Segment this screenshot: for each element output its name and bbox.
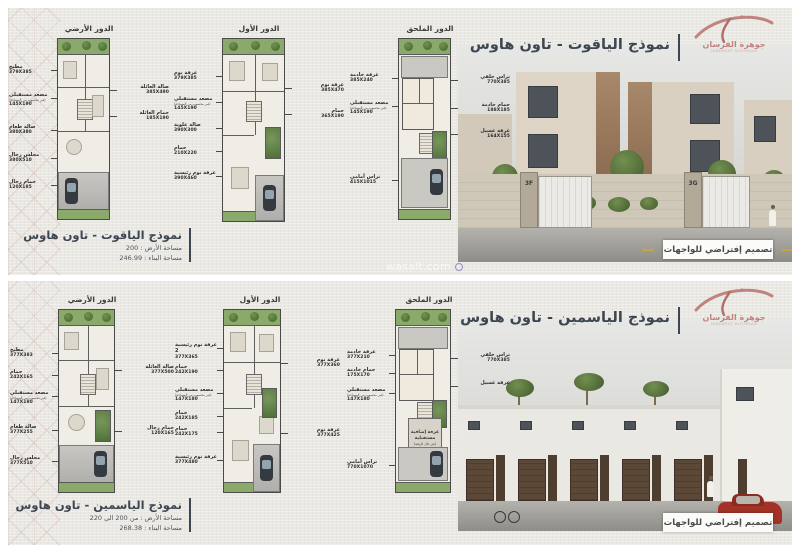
room-label: مصعد مستقبلي (غير محسوب من المساحة) 147X… <box>175 387 217 403</box>
garden-strip <box>58 39 109 55</box>
model-name: نموذج الياسمين - تاون هاوس <box>22 498 182 512</box>
dining-table <box>68 414 85 431</box>
palm-tree <box>643 381 669 397</box>
model-info: نموذج الياقوت - تاون هاوس مساحة الأرض : … <box>22 228 191 262</box>
right-label-column: غرفة نوم 377X360 غرفة نوم 377X425 <box>288 295 340 509</box>
tree <box>64 313 73 322</box>
garden-strip <box>396 482 450 492</box>
model-info: نموذج الياسمين - تاون هاوس مساحة الأرض :… <box>22 498 191 532</box>
person <box>707 481 714 497</box>
room-label: غرفة نوم 377X425 <box>288 427 340 439</box>
unit-sign-3g: 3G <box>685 180 701 187</box>
room-label: مطبخ 379X385 <box>9 64 51 76</box>
entry-door <box>652 455 661 501</box>
bed <box>259 416 274 434</box>
window <box>676 421 688 430</box>
room-label: حمام خادمة 175X170 <box>347 367 389 379</box>
room-label: مجلس رجال 380X510 <box>9 152 51 164</box>
wall <box>224 408 252 409</box>
driveway <box>253 444 280 492</box>
wall <box>419 79 420 103</box>
right-label-column: غرفة نوم 385X470 حمام 365X190 <box>292 24 344 236</box>
wall <box>58 87 109 88</box>
tree <box>250 312 259 321</box>
floor-plan-first: الدور الأول <box>174 24 344 236</box>
driveway <box>255 175 284 221</box>
end-unit <box>720 369 792 501</box>
hedge <box>608 197 630 212</box>
room-label: مصعد مستقبلي (غير محسوب من المساحة) 145X… <box>9 92 51 108</box>
tree <box>438 313 447 322</box>
logo-subtitle: JAWHARAT ALFURSAN <box>684 323 784 327</box>
tree <box>423 41 432 50</box>
bed <box>229 61 245 81</box>
room-label: صالة علوية 390X300 <box>174 122 216 134</box>
gate-post: 3G <box>684 172 702 228</box>
tree <box>251 41 260 50</box>
room-label: حمام 242X165 <box>10 369 52 381</box>
garden-strip <box>223 39 284 55</box>
watermark: wasalt.com <box>386 260 463 273</box>
room-label: مصعد مستقبلي (غير محسوب من المساحة) 145X… <box>174 96 216 112</box>
facade-disclaimer-badge: تصميم إفتراضي للواجهات <box>663 513 773 532</box>
stairs <box>80 374 96 395</box>
wall <box>58 131 109 132</box>
garden-patch <box>262 388 277 418</box>
garage-door <box>570 459 598 501</box>
tree <box>401 313 410 322</box>
window <box>572 421 584 430</box>
palm-tree <box>574 373 604 391</box>
room-label: غرفة غسيل 164X155 <box>458 128 510 140</box>
room-label: مصعد مستقبلي (غير محسوب من المساحة) 145X… <box>350 100 392 116</box>
garden-strip <box>399 39 450 55</box>
floor-plan-first: الدور الأول <box>175 295 345 509</box>
wall <box>223 91 284 92</box>
built-area: مساحة البناء : 246.99 <box>22 254 182 262</box>
bed <box>232 440 249 461</box>
dining-table <box>66 139 82 155</box>
person <box>769 210 776 226</box>
logo-subtitle: JAWHARAT ALFURSAN <box>684 50 784 54</box>
floor-plan-ground: الدور الأرضي مطبخ <box>9 24 169 236</box>
tree <box>102 313 111 322</box>
bed <box>259 334 274 352</box>
tree <box>229 42 238 51</box>
room-label: صالة طعام 377X255 <box>10 424 52 436</box>
tree <box>439 42 448 51</box>
car-top-view <box>263 185 276 211</box>
wall <box>59 360 114 361</box>
room-label: غرفة نوم 385X470 <box>292 82 344 94</box>
room-label: صالة طعام 380X380 <box>9 124 51 136</box>
room-label: حمام خادمة 188X185 <box>458 102 510 114</box>
window <box>754 116 776 142</box>
furniture <box>92 95 104 117</box>
room-label: غرفة نوم 377X360 <box>288 357 340 369</box>
stairs <box>246 101 262 122</box>
car-top-view <box>430 451 443 477</box>
land-area: مساحة الأرض : من 200 الى 220 <box>22 514 182 522</box>
room-label: غرفة غسيل <box>458 380 510 386</box>
room-label: حمام 365X190 <box>292 108 344 120</box>
room-label: مطبخ 377X383 <box>10 347 52 359</box>
room-label: حمام رجال 120X165 <box>122 425 174 437</box>
window <box>528 134 558 168</box>
room-label: حمام 242X175 <box>175 426 217 438</box>
back-terrace <box>401 56 448 78</box>
room-label: غرفة نوم 379X385 <box>174 70 216 82</box>
floor-plan-annex: الدور الملحق غر <box>350 24 510 236</box>
brand-logo: جوهرة الفرسان JAWHARAT ALFURSAN <box>684 11 784 54</box>
room-label: صالة العائلة 385X490 <box>117 84 169 96</box>
plan-drawing <box>222 38 285 222</box>
car-top-view <box>65 178 78 204</box>
car-top-view <box>94 451 107 477</box>
gate-post: 3F <box>520 172 538 228</box>
room-label: غرفة خادمة 385X240 <box>350 72 392 84</box>
bed <box>230 332 246 352</box>
wall <box>255 54 256 135</box>
garden-strip <box>399 209 450 219</box>
model-name: نموذج الياقوت - تاون هاوس <box>22 228 182 242</box>
room-label: غرفة خادمة 377X210 <box>347 349 389 361</box>
white-gate <box>702 176 750 228</box>
garden-strip <box>59 310 114 326</box>
panel-yasmin: جوهرة الفرسان JAWHARAT ALFURSAN نموذج ال… <box>8 281 792 545</box>
tree <box>84 312 93 321</box>
car-top-view <box>260 455 273 481</box>
floor-plan-ground: الدور الأرضي <box>10 295 174 509</box>
plan-drawing <box>223 309 281 493</box>
front-terrace <box>401 158 448 208</box>
land-area: مساحة الأرض : 200 <box>22 244 182 252</box>
room-label: تراس خلفي 770X385 <box>458 74 510 86</box>
tree <box>421 312 430 321</box>
room-label: مصعد مستقبلي (غير محسوب من المساحة) 147X… <box>10 390 52 406</box>
wall <box>223 135 254 136</box>
tree <box>404 42 413 51</box>
driveway <box>58 172 109 210</box>
garage-door <box>518 459 546 501</box>
stairs <box>77 99 93 120</box>
window <box>520 421 532 430</box>
title-divider <box>678 34 681 61</box>
white-gate <box>538 176 592 228</box>
back-terrace <box>398 327 448 349</box>
plan-drawing <box>57 38 110 220</box>
tree <box>98 42 107 51</box>
panel-yaqoot: 3F 3G جوهرة الفرسان JAWHARAT ALFURSAN نم… <box>8 8 792 275</box>
garden-strip <box>223 211 257 221</box>
bicycle-wheel <box>508 511 520 523</box>
bed <box>231 167 249 189</box>
bed <box>262 63 278 81</box>
room-label: تراس أمامي 770X1070 <box>347 459 389 471</box>
window <box>528 86 558 118</box>
plan-drawing: غرفة إضافية مستقبلية (في حال الرغبة) <box>395 309 451 493</box>
garden-patch <box>432 131 447 161</box>
hedge <box>640 197 658 210</box>
room-label: صالة العائلة 377X500 <box>122 364 174 376</box>
front-terrace <box>398 447 448 481</box>
floor-plan-annex: الدور الملحق غرفة إضافية مستقبلية (ف <box>347 295 511 509</box>
wall <box>403 103 433 104</box>
room-label: مجلس رجال 377X510 <box>10 455 52 467</box>
maid-room-block <box>402 78 434 130</box>
wall <box>224 362 280 363</box>
room-label: تراس أمامي 415X1015 <box>350 174 392 186</box>
car-top-view <box>430 169 443 195</box>
room-label: حمام 210X220 <box>174 145 216 157</box>
right-label-column: تراس خلفي 770X385 غرفة غسيل <box>458 295 510 509</box>
right-label-column: صالة العائلة 385X490 حمام العائلة 185X19… <box>117 24 169 236</box>
entry-door <box>600 455 609 501</box>
window <box>736 387 754 401</box>
right-label-column: صالة العائلة 377X500 حمام رجال 120X165 <box>122 295 174 509</box>
garage-door <box>622 459 650 501</box>
room-label: حمام رجال 120X185 <box>9 179 51 191</box>
bicycle-wheel <box>494 511 506 523</box>
window <box>690 94 720 124</box>
furniture <box>96 368 109 390</box>
maid-room-block <box>399 349 434 401</box>
built-area: مساحة البناء : 268.38 <box>22 524 182 532</box>
room-label: مصعد مستقبلي (غير محسوب من المساحة) 147X… <box>347 387 389 403</box>
tree <box>62 42 71 51</box>
tree <box>268 313 277 322</box>
wall <box>417 350 418 374</box>
brochure-page: 3F 3G جوهرة الفرسان JAWHARAT ALFURSAN نم… <box>0 0 800 553</box>
furniture <box>63 61 77 79</box>
tree <box>229 313 238 322</box>
tree <box>82 41 91 50</box>
garden-strip <box>59 482 114 492</box>
garden-strip <box>396 310 450 326</box>
plan-drawing <box>58 309 115 493</box>
room-label: غرفة نوم رئيسية 390X460 <box>174 170 216 182</box>
furniture <box>64 332 79 350</box>
garden-strip <box>224 310 280 326</box>
unit-sign-3f: 3F <box>521 180 537 187</box>
room-label: تراس خلفي 770X385 <box>458 352 510 364</box>
title-divider <box>678 307 681 334</box>
driveway <box>59 445 114 483</box>
garage-door <box>674 459 702 501</box>
window <box>624 421 636 430</box>
brand-logo: جوهرة الفرسان JAWHARAT ALFURSAN <box>684 284 784 327</box>
right-label-column: تراس خلفي 770X385 حمام خادمة 188X185 غرف… <box>458 24 510 236</box>
map-pin-icon <box>455 263 463 271</box>
facade-disclaimer-badge: تصميم إفتراضي للواجهات <box>663 240 773 259</box>
tree <box>271 42 280 51</box>
watermark-text: wasalt.com <box>386 260 451 273</box>
garden-patch <box>265 127 281 159</box>
room-label: غرفة نوم رئيسية 2 377X365 <box>175 342 217 360</box>
wall <box>400 374 433 375</box>
entry-door <box>548 455 557 501</box>
garden-strip <box>58 209 109 219</box>
room-label: غرفة نوم رئيسية 377X480 <box>175 454 217 466</box>
room-label: حمام العائلة 185X190 <box>117 110 169 122</box>
wall <box>254 325 255 408</box>
stairs <box>246 374 262 395</box>
room-label: حمام 242X185 <box>175 410 217 422</box>
garden-patch <box>95 410 111 442</box>
wall <box>59 406 114 407</box>
garden-strip <box>224 482 255 492</box>
room-label: حمام 242X190 <box>175 364 217 376</box>
plan-drawing <box>398 38 451 220</box>
